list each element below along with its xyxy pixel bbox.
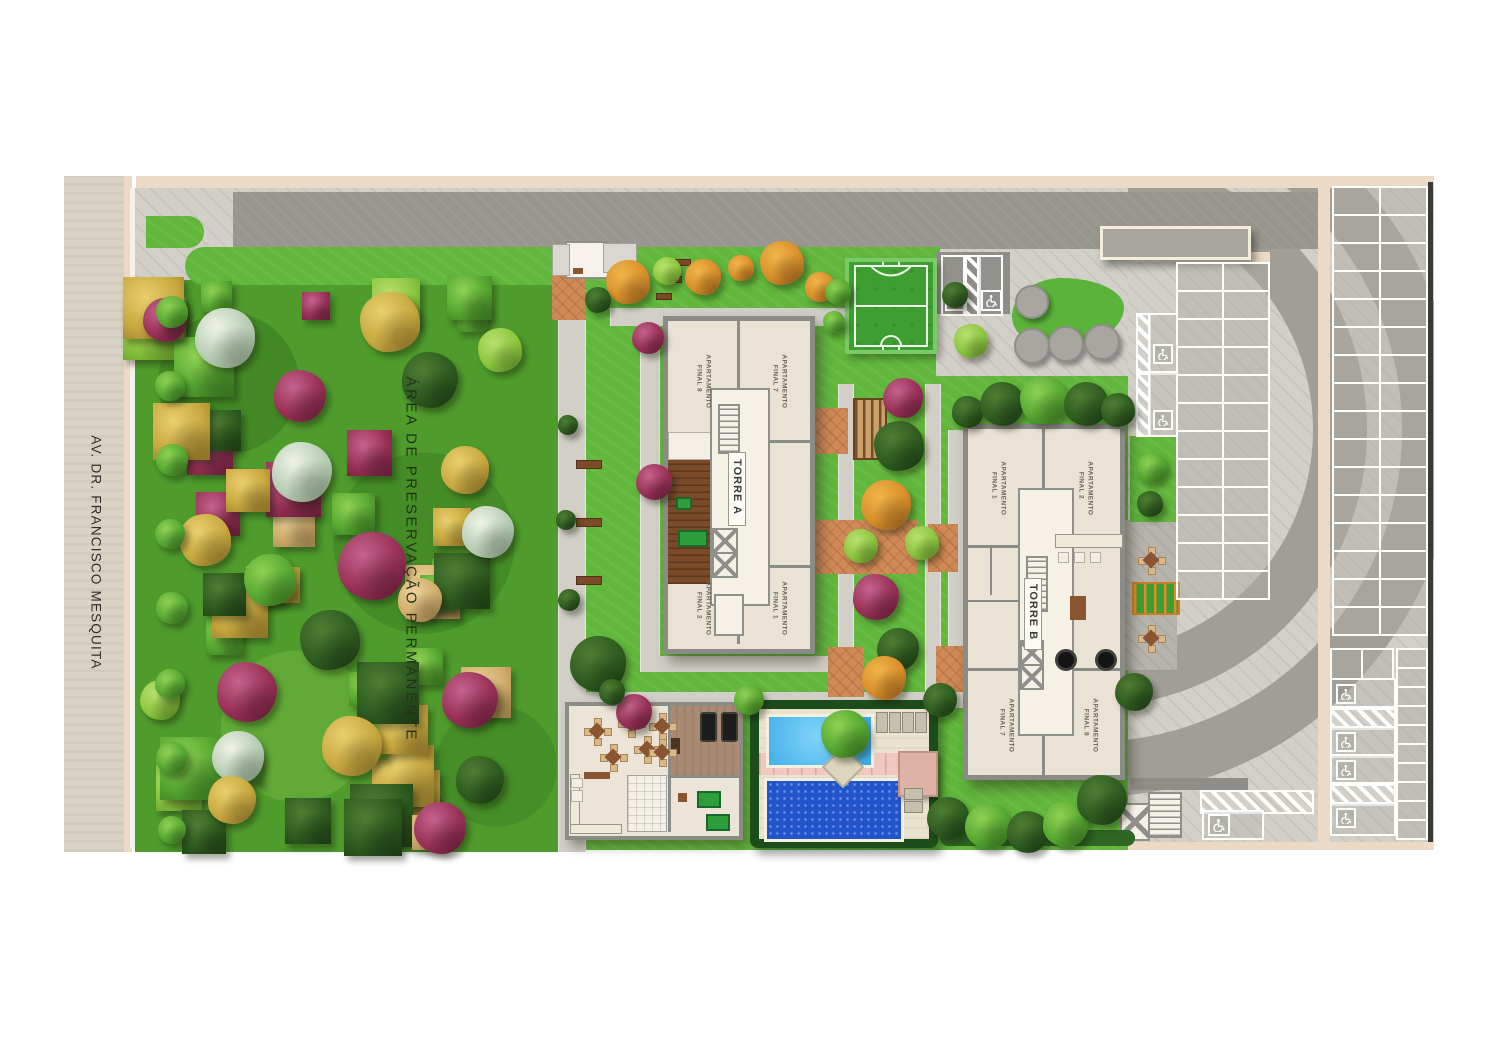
chair xyxy=(1158,557,1166,565)
tree xyxy=(821,710,869,758)
wheelchair-icon xyxy=(1157,348,1170,361)
tree xyxy=(158,816,186,844)
tree xyxy=(179,514,231,566)
parking-stall xyxy=(1222,318,1270,348)
terracotta-plaza xyxy=(828,647,864,697)
stairs xyxy=(718,404,740,454)
tree xyxy=(825,279,851,305)
kitchenette xyxy=(668,432,716,460)
tree xyxy=(734,685,764,715)
tree xyxy=(1101,393,1135,427)
pool-lounger xyxy=(889,712,901,733)
tree xyxy=(883,378,923,418)
chair xyxy=(669,749,677,757)
wheelchair-icon xyxy=(1157,414,1170,427)
parking-stall xyxy=(1222,458,1270,488)
parking-stall xyxy=(1332,242,1381,272)
parking-stall xyxy=(1176,486,1224,516)
interior-wall xyxy=(668,775,739,778)
tree xyxy=(447,276,492,321)
tree xyxy=(556,510,576,530)
parking-stall xyxy=(1332,550,1381,580)
tree xyxy=(155,669,185,699)
tree xyxy=(980,382,1024,426)
tree xyxy=(156,742,188,774)
kitchen-counter xyxy=(570,824,622,834)
tower-a-label: TORRE A xyxy=(731,452,743,522)
tree xyxy=(441,446,489,494)
chair xyxy=(1148,567,1156,575)
parking-stall xyxy=(1379,186,1428,216)
tree xyxy=(414,802,466,854)
tree xyxy=(442,672,498,728)
parking-stall xyxy=(1176,374,1224,404)
parking-stall xyxy=(1332,270,1381,300)
parking-stall xyxy=(1379,438,1428,468)
parking-stall xyxy=(1332,410,1381,440)
tree xyxy=(923,683,957,717)
tree xyxy=(217,662,277,722)
parking-stall xyxy=(1379,550,1428,580)
parking-stall xyxy=(1222,514,1270,544)
site-right-edge xyxy=(1428,182,1433,848)
parking-stall xyxy=(1361,648,1394,680)
tree xyxy=(1077,775,1127,825)
parking-stall xyxy=(1222,262,1270,292)
elevator-shaft xyxy=(1020,664,1044,690)
tree xyxy=(434,553,490,609)
wheelchair-icon xyxy=(1336,684,1356,704)
parking-stall xyxy=(1176,514,1224,544)
side-table xyxy=(678,793,687,802)
parking-stall xyxy=(1222,430,1270,460)
walkway xyxy=(640,656,832,672)
kitchen-counter xyxy=(1055,534,1123,548)
tree xyxy=(606,260,650,304)
chair xyxy=(1158,635,1166,643)
preservation-area-label: ÁREA DE PRESERVAÇÃO PERMANENTE xyxy=(403,377,420,683)
tree xyxy=(1020,376,1068,424)
tree xyxy=(965,803,1011,849)
tree xyxy=(300,610,360,670)
parking-stall xyxy=(1332,214,1381,244)
chair xyxy=(669,723,677,731)
tree xyxy=(155,371,185,401)
wheelchair-icon xyxy=(981,290,1002,311)
interior-wall xyxy=(990,545,992,595)
pool-lounger xyxy=(902,712,914,733)
tree xyxy=(952,396,984,428)
chair xyxy=(644,756,652,764)
tree xyxy=(685,259,721,295)
parking-stall xyxy=(1222,570,1270,600)
chair xyxy=(604,728,612,736)
chair xyxy=(659,759,667,767)
parking-stall xyxy=(1379,242,1428,272)
site-plan: AV. DR. FRANCISCO MESQUITA ÁREA DE PRESE… xyxy=(0,0,1500,1050)
tree xyxy=(927,797,969,839)
wheelchair-icon xyxy=(1340,812,1353,825)
tree xyxy=(226,469,269,512)
tree xyxy=(905,526,939,560)
wheelchair-icon xyxy=(1340,688,1353,701)
parking-stall xyxy=(1396,648,1428,669)
parking-stall xyxy=(1176,430,1224,460)
elevator-shaft xyxy=(712,552,738,578)
parking-stall xyxy=(1379,578,1428,608)
tree xyxy=(272,442,332,502)
tree xyxy=(844,529,878,563)
parking-stall xyxy=(1222,290,1270,320)
parking-stall xyxy=(1332,186,1381,216)
tree xyxy=(332,493,375,536)
unit-label-a-final-2: APARTAMENTO FINAL 2 xyxy=(694,581,713,629)
parking-stall xyxy=(1176,542,1224,572)
tree xyxy=(585,287,611,313)
parking-stall xyxy=(1176,458,1224,488)
bottom-boundary-wall xyxy=(1128,842,1434,850)
wheelchair-icon xyxy=(1153,410,1173,430)
tree xyxy=(1115,673,1153,711)
gate-house-cell xyxy=(552,244,570,276)
tree xyxy=(558,589,580,611)
tree xyxy=(274,370,326,422)
wheelchair-icon xyxy=(1340,736,1353,749)
wheelchair-icon xyxy=(1336,808,1356,828)
barbecue-grill xyxy=(1055,649,1077,671)
barbecue-grill xyxy=(721,712,738,742)
concrete-pad xyxy=(1048,326,1084,362)
gate-door xyxy=(573,268,583,274)
unit-label-b-final-1: APARTAMENTO FINAL 1 xyxy=(989,461,1008,509)
parking-stall xyxy=(1176,346,1224,376)
parking-stall xyxy=(1396,743,1428,764)
parking-stall xyxy=(1332,438,1381,468)
parking-stall xyxy=(1396,667,1428,688)
tree xyxy=(653,257,681,285)
game-table xyxy=(706,814,730,831)
game-table xyxy=(678,530,708,547)
wheelchair-icon xyxy=(1153,344,1173,364)
table xyxy=(1074,552,1085,563)
parking-stall xyxy=(1332,494,1381,524)
tree xyxy=(155,519,185,549)
tree xyxy=(823,311,845,333)
table xyxy=(1090,552,1101,563)
bench xyxy=(576,518,602,527)
parking-stall xyxy=(1379,522,1428,552)
chair xyxy=(620,754,628,762)
wheelchair-icon xyxy=(1212,818,1226,832)
pool-lounger xyxy=(915,712,927,733)
tree xyxy=(853,574,899,620)
parking-stall xyxy=(1332,298,1381,328)
gate-terracotta-path xyxy=(552,276,586,320)
pool-lounger xyxy=(876,712,888,733)
tree xyxy=(1007,811,1049,853)
wheelchair-icon xyxy=(985,294,999,308)
parking-stall xyxy=(1176,402,1224,432)
tree xyxy=(456,756,504,804)
pool-lounger xyxy=(904,788,923,800)
tree xyxy=(1137,491,1163,517)
parking-stall xyxy=(1332,522,1381,552)
parking-stall xyxy=(1396,705,1428,726)
parking-stall xyxy=(1222,486,1270,516)
parking-stall xyxy=(1379,326,1428,356)
parking-stall xyxy=(1222,346,1270,376)
stairs xyxy=(1148,792,1182,838)
tree xyxy=(302,292,330,320)
tower-b-label: TORRE B xyxy=(1027,577,1039,647)
bar-counter xyxy=(584,772,610,779)
parking-stall xyxy=(1332,326,1381,356)
game-table xyxy=(676,497,692,510)
parking-stall xyxy=(1176,570,1224,600)
parking-stall xyxy=(1330,648,1363,680)
tree xyxy=(360,292,420,352)
tree xyxy=(347,430,392,475)
terrace-pergola xyxy=(1132,582,1180,615)
tree xyxy=(874,421,924,471)
parking-stall xyxy=(1396,724,1428,745)
parking-stall xyxy=(1396,781,1428,802)
tree xyxy=(338,532,406,600)
tree xyxy=(203,573,246,616)
entrance-canopy xyxy=(1100,226,1251,260)
appliance xyxy=(571,778,583,788)
elevator-shaft xyxy=(712,528,738,554)
unit-label-a-final-8: APARTAMENTO FINAL 8 xyxy=(694,354,713,402)
tree xyxy=(862,656,906,700)
lobby xyxy=(714,594,744,636)
tree xyxy=(728,255,754,281)
tree xyxy=(636,464,672,500)
wheelchair-icon xyxy=(1208,814,1230,836)
parking-stall xyxy=(1332,466,1381,496)
parking-stall xyxy=(1396,819,1428,840)
parking-stall xyxy=(1176,290,1224,320)
tree xyxy=(760,241,804,285)
tree xyxy=(478,328,522,372)
tree xyxy=(244,554,296,606)
tree xyxy=(558,415,578,435)
parking-stall xyxy=(1176,262,1224,292)
tree xyxy=(1137,453,1167,483)
table xyxy=(1058,552,1069,563)
pool-lounger xyxy=(904,801,923,813)
concrete-pad xyxy=(1014,328,1050,364)
court-markings xyxy=(845,258,937,354)
tree xyxy=(156,444,188,476)
unit-label-b-final-8: APARTAMENTO FINAL 8 xyxy=(1081,698,1100,746)
tree xyxy=(156,592,188,624)
appliance xyxy=(571,790,583,802)
parking-stall xyxy=(1379,494,1428,524)
barbecue-grill xyxy=(700,712,717,742)
tree xyxy=(462,506,514,558)
parking-stall xyxy=(1379,382,1428,412)
garage-wall xyxy=(1130,778,1248,790)
parking-stall xyxy=(1396,762,1428,783)
parking-stall xyxy=(1222,402,1270,432)
unit-label-b-final-7: APARTAMENTO FINAL 7 xyxy=(997,698,1016,746)
cabinet xyxy=(1070,596,1086,620)
tree xyxy=(212,731,264,783)
interior-wall xyxy=(963,600,1018,602)
tree xyxy=(285,798,331,844)
parking-stall xyxy=(1379,606,1428,636)
bench xyxy=(576,576,602,585)
tree xyxy=(195,308,255,368)
bench xyxy=(576,460,602,469)
parking-stall xyxy=(1379,354,1428,384)
tree xyxy=(942,282,968,308)
tree xyxy=(208,776,256,824)
chair xyxy=(1148,645,1156,653)
parking-stall xyxy=(1396,800,1428,821)
bench xyxy=(656,293,672,300)
tree xyxy=(599,679,625,705)
parking-stall xyxy=(1176,318,1224,348)
parking-stall xyxy=(1332,354,1381,384)
parking-stall xyxy=(1332,578,1381,608)
parking-stall xyxy=(1332,606,1381,636)
top-boundary-wall xyxy=(136,176,1434,188)
parking-stall xyxy=(1222,374,1270,404)
street-name-label: AV. DR. FRANCISCO MESQUITA xyxy=(89,435,104,671)
parking-stall xyxy=(1379,466,1428,496)
parking-stall xyxy=(1332,382,1381,412)
concrete-pad xyxy=(1015,285,1049,319)
tree xyxy=(322,716,382,776)
tree xyxy=(861,480,911,530)
tree xyxy=(344,799,402,857)
parking-stall xyxy=(1379,214,1428,244)
game-table xyxy=(697,791,721,808)
parking-stall xyxy=(1379,410,1428,440)
tree xyxy=(954,324,988,358)
unit-label-a-final-7: APARTAMENTO FINAL 7 xyxy=(770,354,789,402)
lawn-wedge xyxy=(146,216,204,248)
far-parking-edge-wall xyxy=(1318,186,1330,846)
parking-stall xyxy=(1396,686,1428,707)
main-pool xyxy=(764,778,904,842)
unit-label-b-final-2: APARTAMENTO FINAL 2 xyxy=(1076,461,1095,509)
sports-court xyxy=(845,258,937,354)
chair xyxy=(594,738,602,746)
concrete-pad xyxy=(1084,324,1120,360)
wheelchair-icon xyxy=(1336,732,1356,752)
chair xyxy=(628,730,636,738)
tree xyxy=(156,296,188,328)
chair xyxy=(610,764,618,772)
parking-stall xyxy=(1379,298,1428,328)
parking-stall xyxy=(1379,270,1428,300)
tree xyxy=(632,322,664,354)
wheelchair-icon xyxy=(1340,764,1353,777)
wheelchair-icon xyxy=(1336,760,1356,780)
parking-stall xyxy=(1222,542,1270,572)
restrooms xyxy=(627,775,667,832)
barbecue-grill xyxy=(1095,649,1117,671)
unit-label-a-final-1: APARTAMENTO FINAL 1 xyxy=(770,581,789,629)
